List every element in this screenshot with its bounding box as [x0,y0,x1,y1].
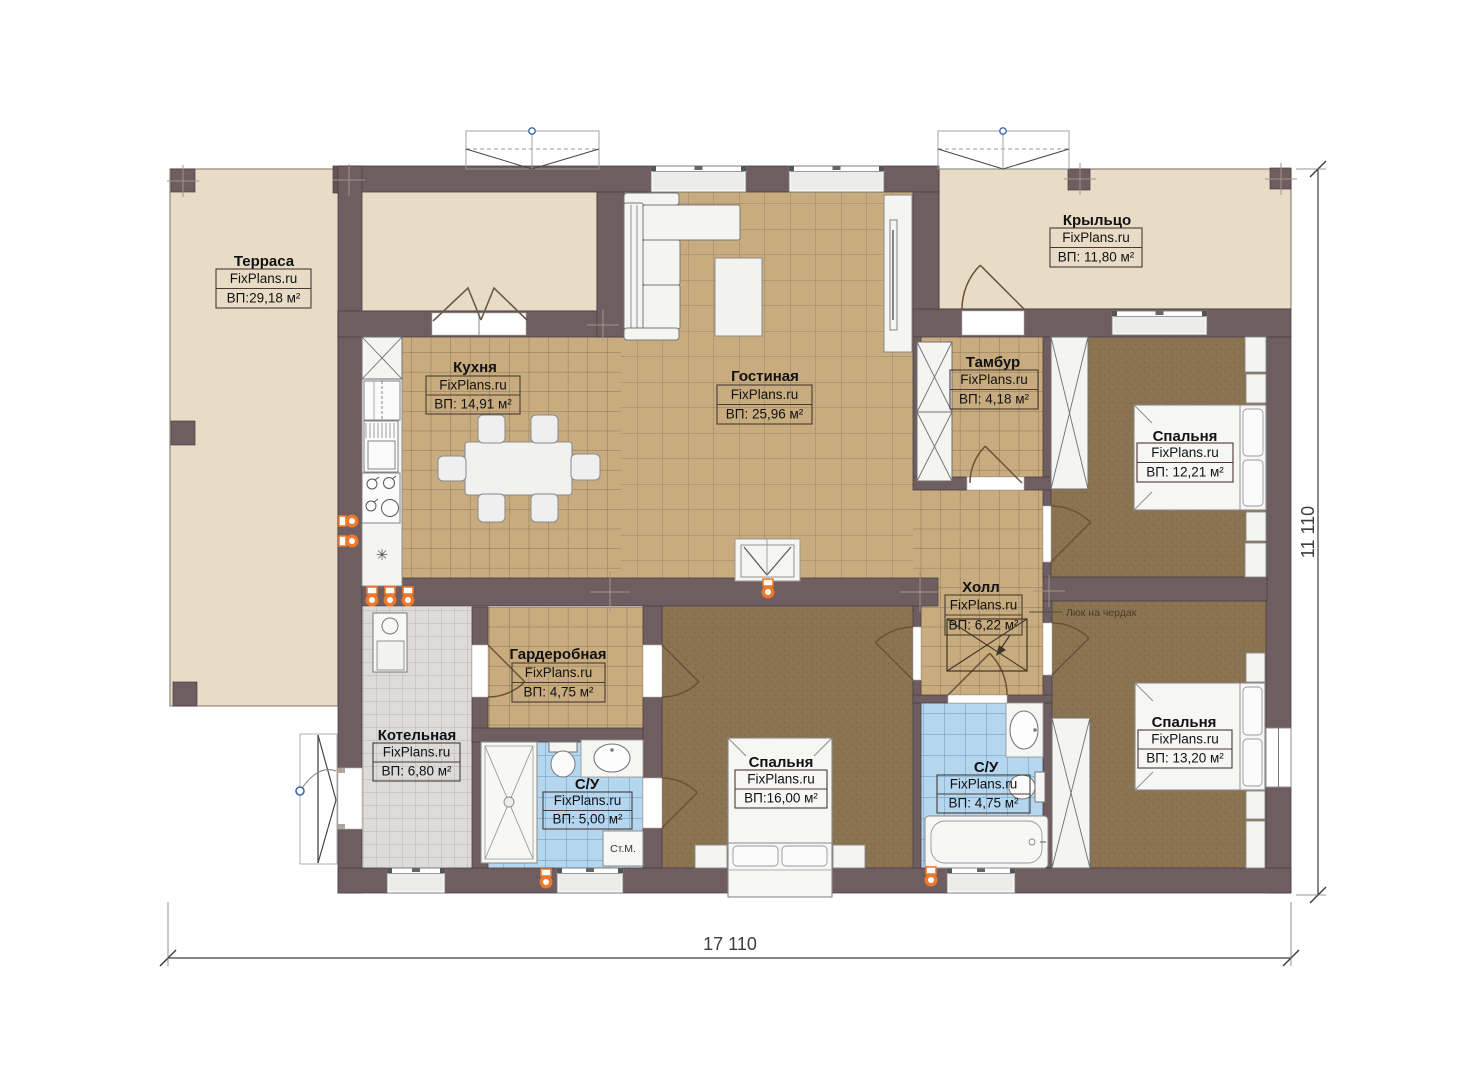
svg-text:FixPlans.ru: FixPlans.ru [731,387,799,402]
svg-text:ВП: 4,75 м²: ВП: 4,75 м² [948,796,1019,811]
svg-text:Ст.М.: Ст.М. [610,843,636,855]
svg-text:Гостиная: Гостиная [731,368,799,385]
svg-text:FixPlans.ru: FixPlans.ru [950,777,1018,792]
svg-text:FixPlans.ru: FixPlans.ru [525,665,593,680]
svg-text:Спальня: Спальня [749,754,814,771]
svg-text:ВП: 4,75 м²: ВП: 4,75 м² [523,685,594,700]
svg-text:Гардеробная: Гардеробная [509,646,606,663]
svg-text:FixPlans.ru: FixPlans.ru [960,372,1028,387]
svg-text:11 110: 11 110 [1298,506,1318,558]
svg-text:Люк на чердак: Люк на чердак [1066,607,1137,619]
svg-text:Кухня: Кухня [453,359,497,376]
svg-text:FixPlans.ru: FixPlans.ru [1062,230,1130,245]
svg-text:Терраса: Терраса [234,253,295,270]
svg-text:FixPlans.ru: FixPlans.ru [383,745,451,760]
svg-text:FixPlans.ru: FixPlans.ru [1151,445,1219,460]
svg-text:ВП: 11,80 м²: ВП: 11,80 м² [1058,250,1135,265]
svg-text:ВП:16,00 м²: ВП:16,00 м² [744,791,818,806]
svg-text:ВП: 6,22 м²: ВП: 6,22 м² [948,618,1019,633]
svg-text:Спальня: Спальня [1152,714,1217,731]
svg-text:Котельная: Котельная [378,727,457,744]
svg-text:С/У: С/У [974,759,999,776]
svg-text:FixPlans.ru: FixPlans.ru [439,378,507,393]
svg-text:17 110: 17 110 [703,934,757,954]
svg-text:Крыльцо: Крыльцо [1063,212,1131,229]
svg-text:Холл: Холл [962,579,1000,596]
svg-text:FixPlans.ru: FixPlans.ru [747,772,815,787]
svg-text:ВП: 13,20 м²: ВП: 13,20 м² [1146,751,1224,766]
svg-text:ВП:29,18 м²: ВП:29,18 м² [227,291,301,306]
svg-text:С/У: С/У [575,776,600,793]
svg-text:ВП: 25,96 м²: ВП: 25,96 м² [726,407,804,422]
svg-text:FixPlans.ru: FixPlans.ru [230,271,298,286]
svg-text:✳: ✳ [376,547,389,564]
svg-text:ВП: 12,21 м²: ВП: 12,21 м² [1146,465,1224,480]
svg-text:ВП: 4,18 м²: ВП: 4,18 м² [959,392,1030,407]
svg-text:FixPlans.ru: FixPlans.ru [1151,732,1219,747]
svg-text:Тамбур: Тамбур [966,354,1020,371]
svg-text:FixPlans.ru: FixPlans.ru [950,598,1018,613]
svg-text:ВП: 6,80 м²: ВП: 6,80 м² [381,764,452,779]
svg-text:ВП: 5,00 м²: ВП: 5,00 м² [552,812,623,827]
svg-text:FixPlans.ru: FixPlans.ru [554,793,622,808]
svg-text:ВП: 14,91 м²: ВП: 14,91 м² [434,397,512,412]
